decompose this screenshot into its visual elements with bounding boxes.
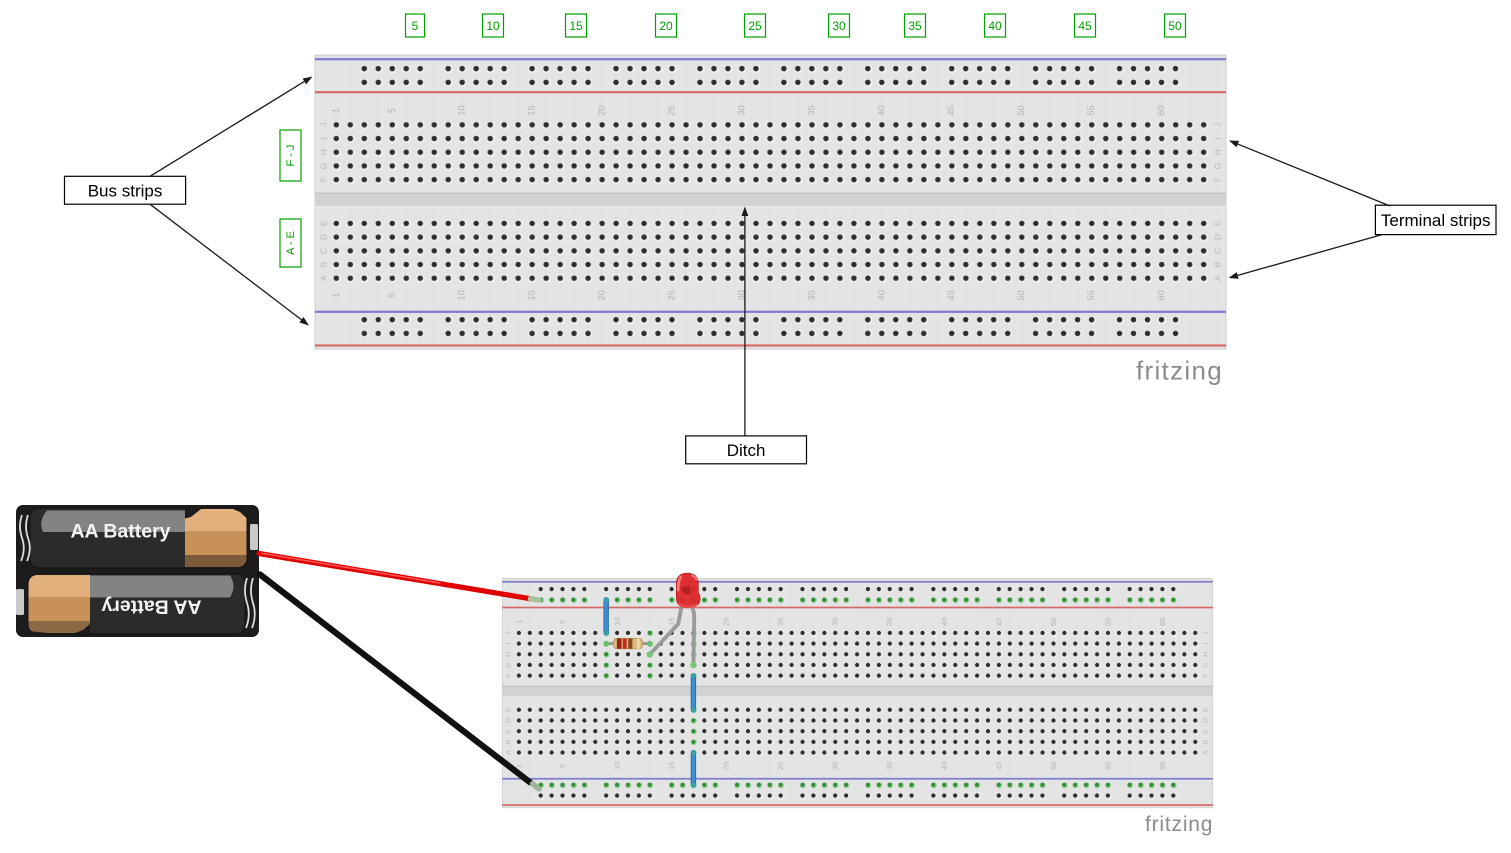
- svg-text:fritzing: fritzing: [1145, 813, 1213, 836]
- svg-text:40: 40: [988, 19, 1002, 33]
- svg-text:25: 25: [748, 19, 762, 33]
- svg-text:5: 5: [412, 19, 419, 33]
- svg-text:30: 30: [832, 19, 846, 33]
- svg-text:15: 15: [569, 19, 583, 33]
- svg-text:Ditch: Ditch: [727, 441, 766, 460]
- svg-text:A - E: A - E: [285, 231, 297, 255]
- svg-text:45: 45: [1078, 19, 1092, 33]
- svg-text:Terminal strips: Terminal strips: [1381, 211, 1491, 230]
- svg-text:AA Battery: AA Battery: [70, 521, 170, 543]
- svg-text:F - J: F - J: [285, 145, 297, 167]
- svg-text:Bus strips: Bus strips: [88, 181, 163, 200]
- svg-text:35: 35: [908, 19, 922, 33]
- svg-text:fritzing: fritzing: [1136, 356, 1223, 386]
- svg-text:10: 10: [486, 19, 500, 33]
- svg-text:AA Battery: AA Battery: [101, 596, 201, 618]
- svg-text:20: 20: [659, 19, 673, 33]
- svg-text:50: 50: [1168, 19, 1182, 33]
